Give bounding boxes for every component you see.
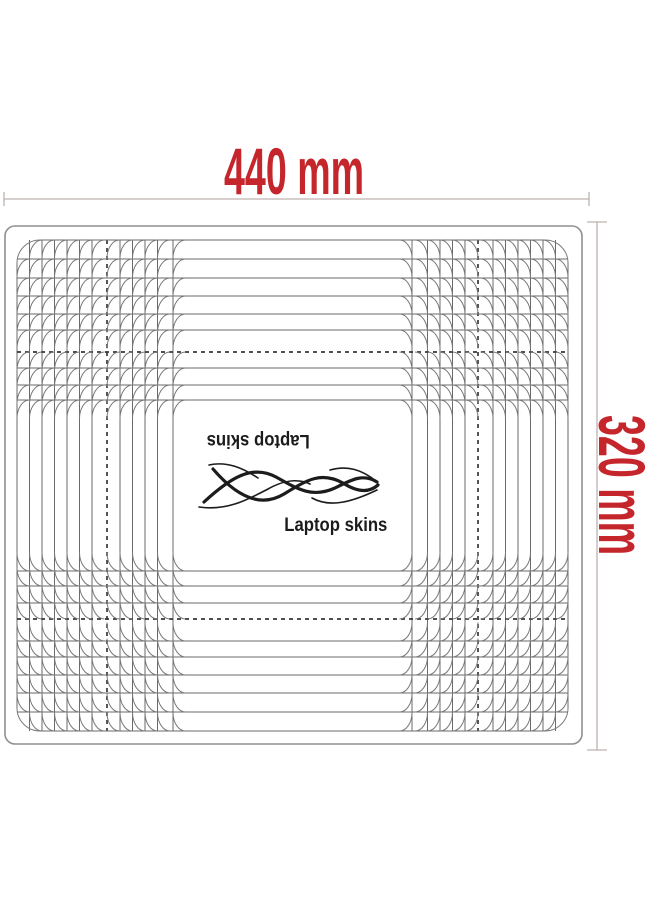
height-dimension-label: 320 mm (589, 415, 655, 555)
brand-swirl-logo (199, 464, 378, 508)
laptop-skin-dimension-diagram: 440 mm 320 mm Laptop skins Laptop skins (0, 0, 660, 900)
width-dimension-label: 440 mm (224, 138, 364, 204)
brand-text-inverted: Laptop skins (218, 430, 310, 450)
brand-text: Laptop skins (284, 516, 376, 536)
